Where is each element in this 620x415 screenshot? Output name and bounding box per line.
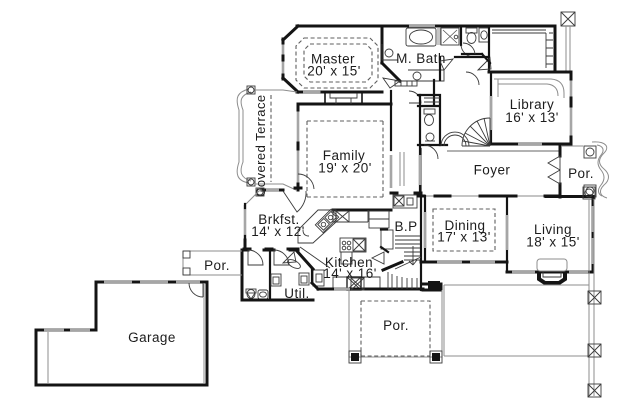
svg-text:14' x 12': 14' x 12' <box>251 224 305 239</box>
svg-text:Por.: Por. <box>568 166 594 181</box>
svg-text:Covered Terrace: Covered Terrace <box>253 94 268 197</box>
svg-text:Por.: Por. <box>204 258 230 273</box>
svg-text:20' x 15': 20' x 15' <box>307 64 361 79</box>
svg-text:17' x 13': 17' x 13' <box>437 230 491 245</box>
svg-text:14' x 16': 14' x 16' <box>323 266 377 281</box>
svg-text:Por.: Por. <box>383 318 409 333</box>
svg-text:19' x 20': 19' x 20' <box>318 161 372 176</box>
svg-text:M. Bath: M. Bath <box>396 51 446 66</box>
svg-text:Util.: Util. <box>284 286 310 301</box>
svg-text:Foyer: Foyer <box>474 163 511 178</box>
svg-text:16' x 13': 16' x 13' <box>505 110 559 125</box>
svg-text:Garage: Garage <box>128 330 176 345</box>
svg-text:18' x 15': 18' x 15' <box>526 235 580 250</box>
svg-text:B.P: B.P <box>394 219 417 234</box>
